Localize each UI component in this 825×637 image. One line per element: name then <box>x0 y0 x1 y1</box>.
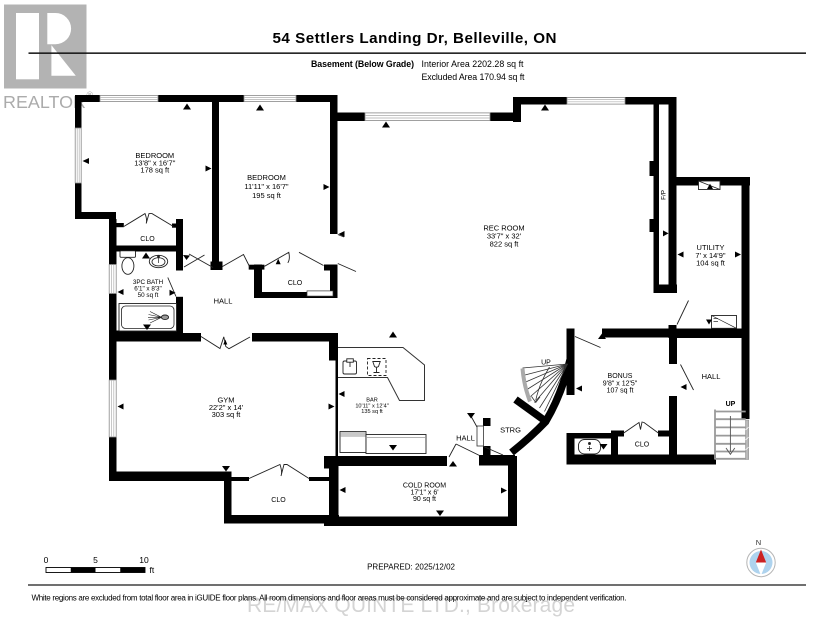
svg-text:CLO: CLO <box>271 497 286 504</box>
svg-text:178 sq ft: 178 sq ft <box>140 166 170 175</box>
svg-text:CLO: CLO <box>635 442 650 449</box>
svg-text:0: 0 <box>44 555 49 565</box>
svg-text:10: 10 <box>139 555 149 565</box>
svg-text:5: 5 <box>93 555 98 565</box>
svg-text:HALL: HALL <box>702 372 721 381</box>
svg-text:BONUS: BONUS <box>608 373 633 380</box>
svg-text:BEDROOM: BEDROOM <box>247 173 286 182</box>
svg-text:11'11" x 16'7": 11'11" x 16'7" <box>244 182 289 191</box>
svg-text:N: N <box>756 538 761 547</box>
svg-text:90 sq ft: 90 sq ft <box>413 496 436 503</box>
svg-text:HALL: HALL <box>456 434 475 443</box>
svg-text:ft: ft <box>150 565 155 575</box>
svg-text:Excluded Area 170.94 sq ft: Excluded Area 170.94 sq ft <box>422 72 526 82</box>
svg-text:303 sq ft: 303 sq ft <box>212 410 242 419</box>
svg-text:50 sq ft: 50 sq ft <box>138 292 159 299</box>
svg-text:CLO: CLO <box>140 236 155 243</box>
svg-text:195 sq ft: 195 sq ft <box>252 191 282 200</box>
svg-text:107 sq ft: 107 sq ft <box>607 388 634 395</box>
svg-text:54 Settlers Landing Dr, Bellev: 54 Settlers Landing Dr, Belleville, ON <box>273 30 557 47</box>
svg-text:White regions are excluded fro: White regions are excluded from total fl… <box>32 594 627 603</box>
svg-text:HALL: HALL <box>214 297 233 306</box>
svg-text:822 sq ft: 822 sq ft <box>490 240 520 249</box>
svg-text:UP: UP <box>541 360 551 367</box>
svg-text:COLD ROOM: COLD ROOM <box>403 483 446 490</box>
svg-text:Basement (Below Grade): Basement (Below Grade) <box>311 59 414 69</box>
svg-text:104 sq ft: 104 sq ft <box>696 259 726 268</box>
svg-text:REALTOR: REALTOR <box>3 92 86 112</box>
svg-text:UP: UP <box>726 401 736 408</box>
svg-text:PREPARED: 2025/12/02: PREPARED: 2025/12/02 <box>367 563 455 572</box>
svg-text:CLO: CLO <box>288 280 303 287</box>
svg-text:Interior Area 2202.28 sq ft: Interior Area 2202.28 sq ft <box>422 59 525 69</box>
svg-text:STRG: STRG <box>500 426 521 435</box>
svg-text:9'8" x 12'5": 9'8" x 12'5" <box>603 381 638 388</box>
svg-text:F/P: F/P <box>661 190 668 200</box>
svg-text:135 sq ft: 135 sq ft <box>361 409 383 415</box>
